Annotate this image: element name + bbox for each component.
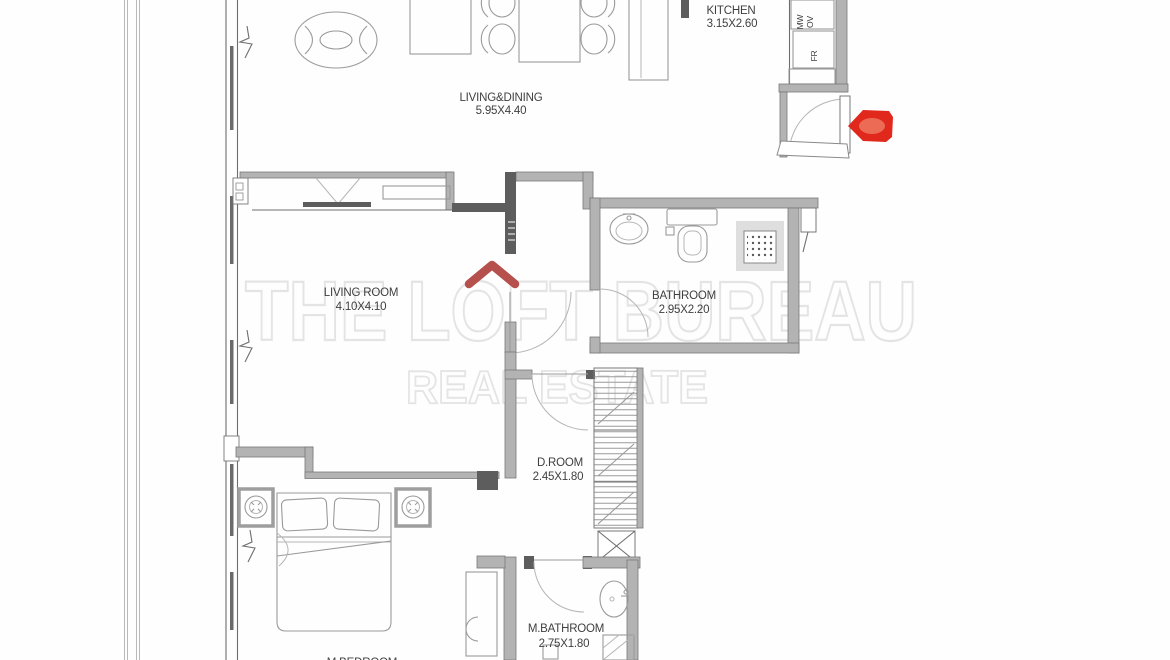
tv-board — [303, 202, 371, 207]
tv-icon — [316, 178, 360, 204]
nightstand — [239, 489, 273, 526]
fridge-label: FR — [809, 50, 819, 61]
shelf — [383, 186, 450, 199]
bathroom-dims: 2.95X2.20 — [659, 304, 710, 316]
floorplan-drawing: THE LOFT BUREAU REAL ESTATE — [0, 0, 1170, 660]
nightstand — [396, 489, 430, 526]
window-break-icon — [243, 530, 255, 562]
living-dining-area: LIVING&DINING 5.95X4.40 — [295, 0, 668, 117]
kitchen-counter — [629, 0, 668, 80]
toilet — [666, 209, 717, 262]
console-table — [410, 0, 471, 54]
entrance-marker-icon — [848, 110, 893, 142]
sink — [610, 214, 648, 244]
master-bathroom-dims: 2.75X1.80 — [539, 638, 590, 650]
window-break-icon — [240, 26, 252, 58]
master-bathroom-label: M.BATHROOM — [528, 623, 604, 635]
oven-label: OV — [805, 16, 815, 28]
pillow — [281, 498, 328, 531]
entrance-threshold — [777, 141, 849, 158]
round-rug — [295, 12, 377, 68]
chair — [466, 617, 478, 641]
living-dining-dims: 5.95X4.40 — [476, 105, 527, 117]
tv-niche-wall — [240, 172, 593, 212]
living-room-label: LIVING ROOM — [324, 287, 398, 299]
entrance — [777, 92, 893, 158]
dressing-room-dims: 2.45X1.80 — [533, 471, 584, 483]
kitchen-label: KITCHEN — [706, 5, 755, 17]
living-dining-label: LIVING&DINING — [459, 92, 542, 104]
double-bed — [277, 493, 391, 631]
kitchen-dims: 3.15X2.60 — [707, 18, 758, 30]
living-room-dims: 4.10X4.10 — [336, 301, 387, 313]
shaft — [598, 531, 635, 561]
master-bedroom-area: M.BEDROOM — [236, 447, 499, 660]
sink — [600, 581, 629, 617]
dining-chair — [481, 0, 515, 17]
dining-table — [481, 0, 614, 62]
balcony-edge-lines — [125, 0, 140, 660]
kitchen-cabinet — [789, 69, 835, 84]
wall-fixture — [508, 216, 516, 244]
watermark-tagline-text: REAL ESTATE — [406, 361, 708, 413]
door-swing-arc — [534, 562, 584, 612]
dresser — [466, 572, 497, 656]
master-bathroom-area: M.BATHROOM 2.75X1.80 — [477, 556, 640, 660]
floorplan-page: THE LOFT BUREAU REAL ESTATE — [0, 0, 1170, 660]
dining-chair — [581, 0, 615, 17]
microwave-label: MW — [795, 14, 805, 29]
dining-chair — [481, 24, 515, 54]
wall-junction-block — [233, 178, 248, 204]
wardrobe — [594, 368, 638, 528]
dressing-room-label: D.ROOM — [537, 457, 583, 469]
dining-chair — [581, 24, 615, 54]
shower — [736, 221, 784, 271]
pillow — [333, 498, 380, 531]
bathroom-label: BATHROOM — [652, 290, 716, 302]
kitchen-area: MW OV FR KITCHEN 3.15X2.60 — [681, 0, 848, 92]
wall-niche — [801, 208, 816, 232]
